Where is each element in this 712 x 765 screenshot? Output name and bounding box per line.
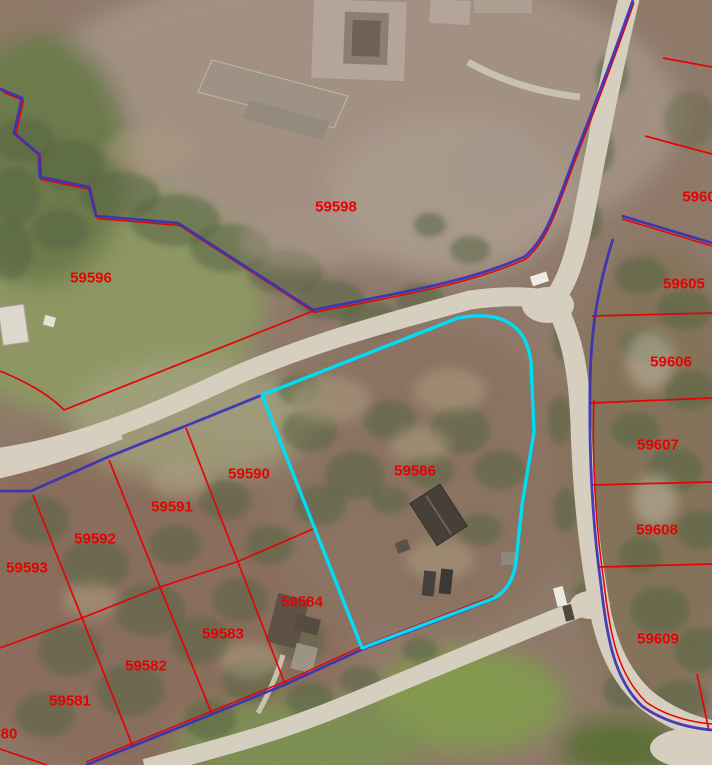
- parcel-label-59606[interactable]: 59606: [650, 355, 692, 370]
- white-house: [0, 304, 29, 345]
- building-wing: [429, 0, 470, 25]
- building-strip: [474, 0, 532, 13]
- parcel-label-59590[interactable]: 59590: [228, 467, 270, 482]
- parcel-label-59596[interactable]: 59596: [70, 271, 112, 286]
- gray-box: [501, 552, 515, 565]
- map-canvas[interactable]: 5959859596596059605596065960759608596095…: [0, 0, 712, 765]
- parcel-label-59583[interactable]: 59583: [202, 627, 244, 642]
- parcel-label-59592[interactable]: 59592: [74, 532, 116, 547]
- parcel-label-59598[interactable]: 59598: [315, 200, 357, 215]
- parcel-label-59607[interactable]: 59607: [637, 438, 679, 453]
- parcel-label-59593[interactable]: 59593: [6, 561, 48, 576]
- parcel-label-59582[interactable]: 59582: [125, 659, 167, 674]
- parcel-label-59591[interactable]: 59591: [151, 500, 193, 515]
- parcel-label-59608[interactable]: 59608: [636, 523, 678, 538]
- aerial-imagery: [0, 0, 712, 765]
- parcel-label-59609[interactable]: 59609: [637, 632, 679, 647]
- parcel-label-59580[interactable]: 80: [1, 727, 18, 742]
- parcel-label-59584[interactable]: 59584: [281, 595, 323, 610]
- parcel-label-59581[interactable]: 59581: [49, 694, 91, 709]
- school-building: [311, 0, 408, 82]
- parcel-label-59605[interactable]: 59605: [663, 277, 705, 292]
- parcel-label-5960x[interactable]: 5960: [682, 190, 712, 205]
- parcel-label-59586[interactable]: 59586: [394, 464, 436, 479]
